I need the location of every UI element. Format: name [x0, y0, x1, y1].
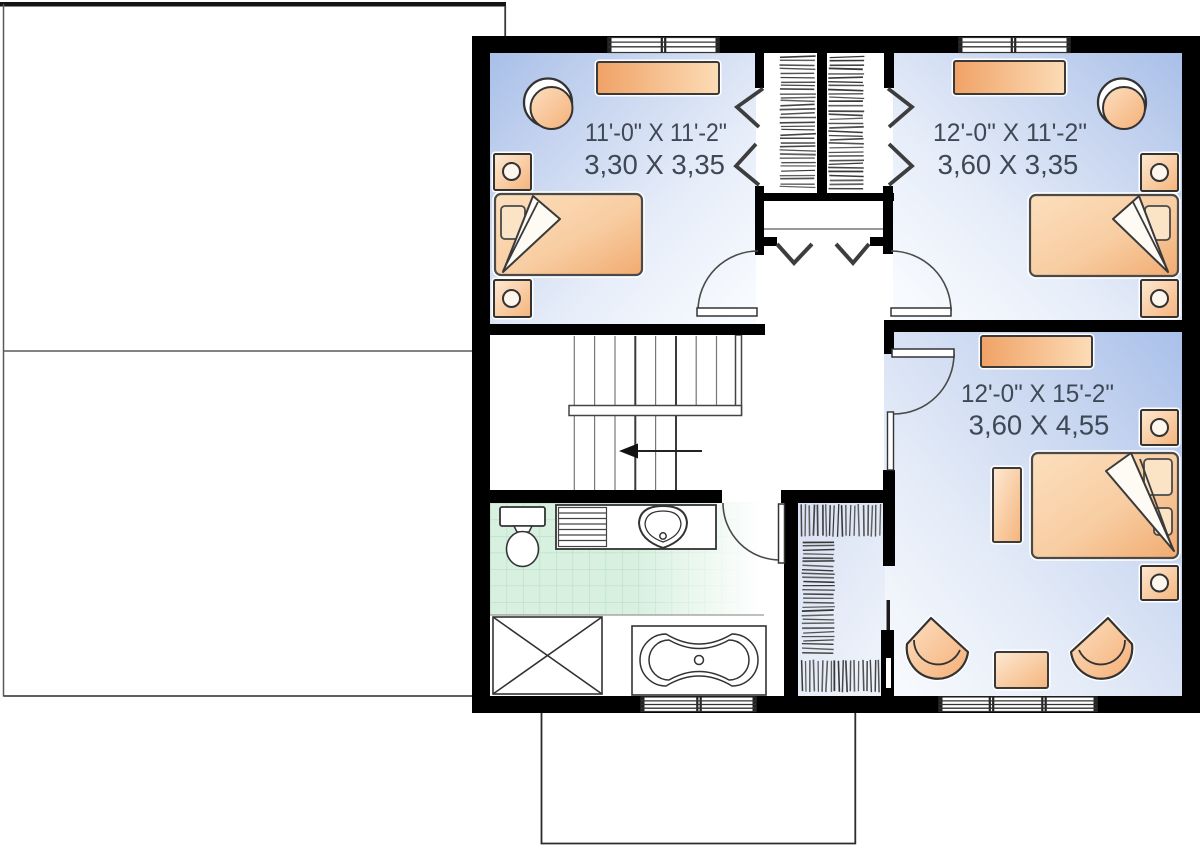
svg-text:3,30 X 3,35: 3,30 X 3,35 — [584, 149, 725, 180]
svg-text:12'-0" X 11'-2": 12'-0" X 11'-2" — [933, 120, 1087, 147]
svg-text:12'-0" X 15'-2": 12'-0" X 15'-2" — [961, 381, 1114, 408]
svg-text:11'-0" X 11'-2": 11'-0" X 11'-2" — [585, 119, 727, 147]
svg-text:3,60 X 3,35: 3,60 X 3,35 — [938, 149, 1079, 180]
svg-text:3,60 X 4,55: 3,60 X 4,55 — [969, 410, 1110, 441]
